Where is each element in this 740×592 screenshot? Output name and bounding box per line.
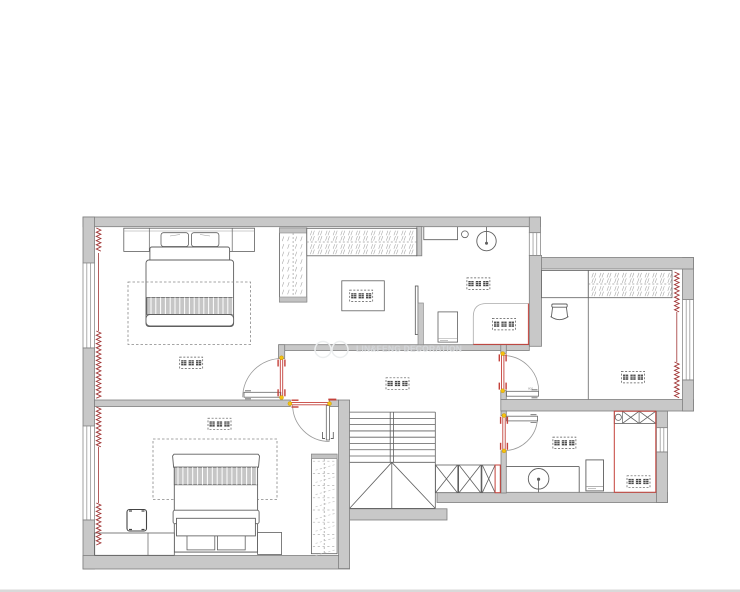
svg-text:800: 800 xyxy=(528,387,533,391)
svg-text:LIN&FENG DECORATION: LIN&FENG DECORATION xyxy=(356,344,462,354)
